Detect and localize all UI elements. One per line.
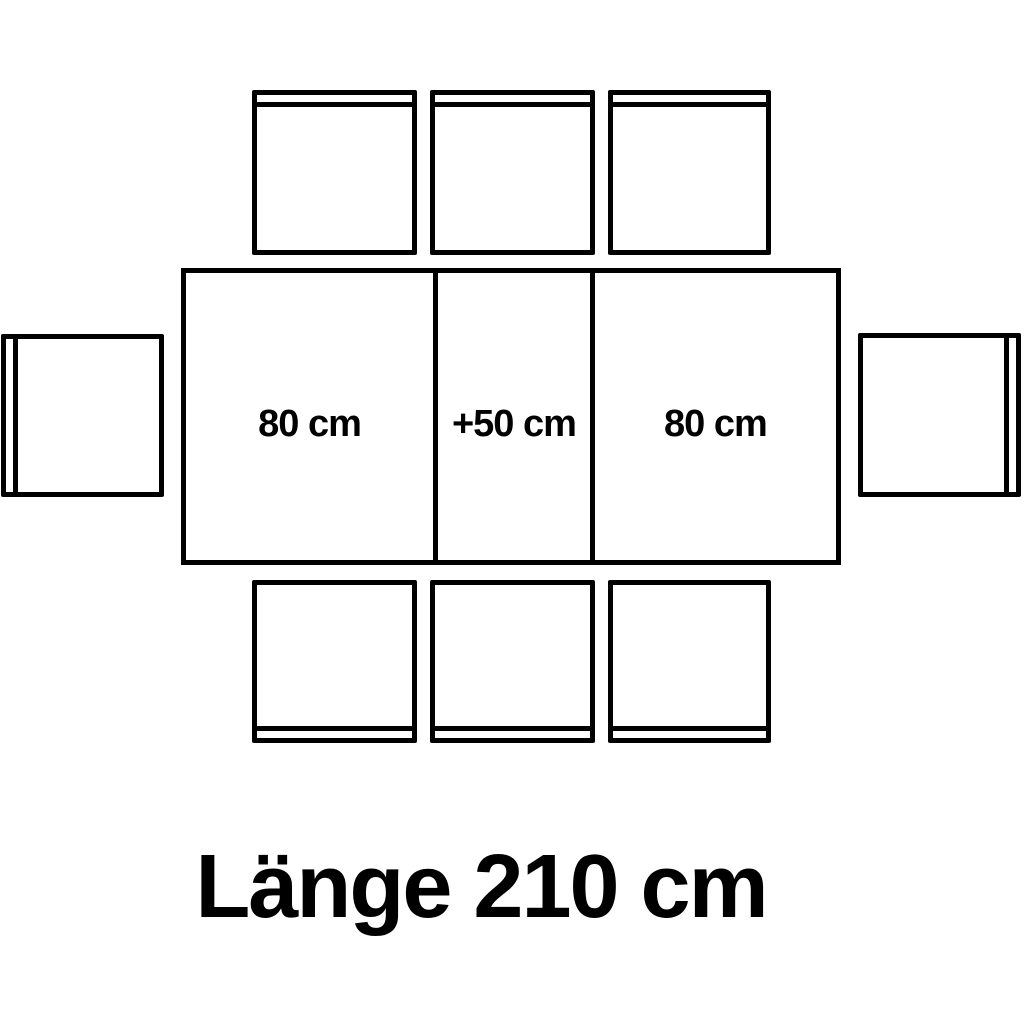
chair-right xyxy=(858,333,1021,497)
table-section-right: 80 cm xyxy=(595,273,836,560)
chair-backrest xyxy=(257,726,412,738)
chair-backrest xyxy=(257,95,412,107)
chair-top-2 xyxy=(430,90,595,255)
dimension-diagram: 80 cm +50 cm 80 cm Länge 210 cm xyxy=(0,0,1024,1024)
chair-top-1 xyxy=(252,90,417,255)
chair-backrest xyxy=(613,95,766,107)
chair-backrest xyxy=(1004,338,1016,492)
table-top: 80 cm +50 cm 80 cm xyxy=(181,268,841,565)
chair-backrest xyxy=(435,726,590,738)
chair-backrest xyxy=(6,339,18,492)
chair-left xyxy=(1,334,164,497)
table-section-left: 80 cm xyxy=(186,273,433,560)
chair-bottom-1 xyxy=(252,580,417,743)
chair-top-3 xyxy=(608,90,771,255)
chair-backrest xyxy=(435,95,590,107)
section-label-left: 80 cm xyxy=(258,403,361,446)
chair-bottom-3 xyxy=(608,580,771,743)
length-caption: Länge 210 cm xyxy=(195,838,766,937)
chair-backrest xyxy=(613,726,766,738)
section-label-extension: +50 cm xyxy=(452,403,576,446)
section-label-right: 80 cm xyxy=(664,403,767,446)
table-section-extension: +50 cm xyxy=(433,273,595,560)
chair-bottom-2 xyxy=(430,580,595,743)
